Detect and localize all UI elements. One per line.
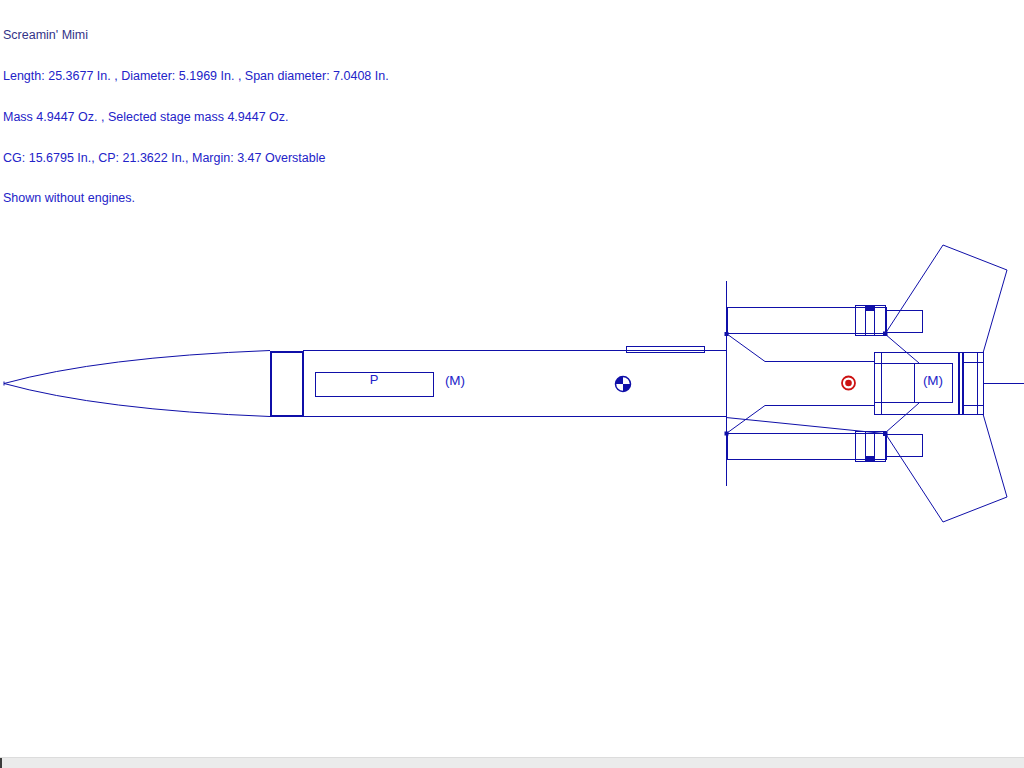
fin-lower [885,414,1007,522]
motor-mount [765,352,984,415]
nose-shoulder [271,352,303,416]
pod-tube-lower [728,434,887,460]
pod-tube-upper [728,308,887,334]
pod-nozzle-lower [887,435,923,457]
cg-symbol-icon [616,377,631,392]
body-tube [303,351,726,417]
parachute-label: P [370,372,379,387]
mass-override-label-aft: (M) [923,373,943,388]
rocket-diagram: P (M) (M) [0,0,1024,768]
pod-nozzle-upper [887,311,923,333]
launch-lug [627,347,705,353]
mass-override-label-fore: (M) [445,373,465,388]
junction-nodes [725,306,888,461]
cp-symbol-icon [842,377,855,390]
fin-upper [885,245,1007,353]
rocksim-design-view: Screamin' Mimi Length: 25.3677 In. , Dia… [0,0,1024,768]
boattail-transition [726,334,919,434]
nose-cone [4,351,270,417]
window-corner-edge [0,758,2,768]
window-bottom-edge [0,757,1024,768]
